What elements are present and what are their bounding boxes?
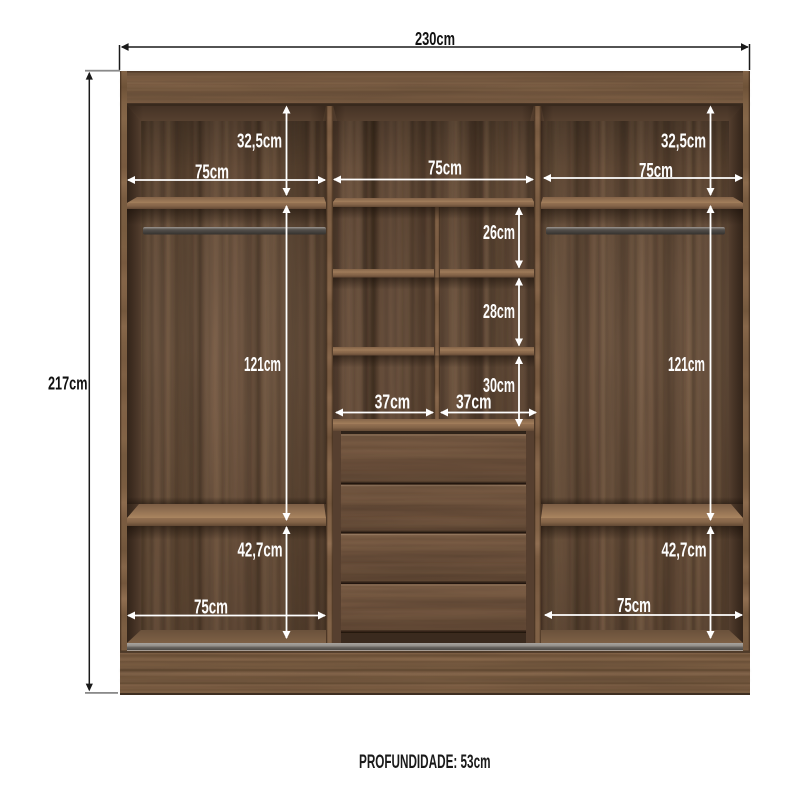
svg-text:75cm: 75cm — [428, 158, 462, 180]
svg-text:PROFUNDIDADE: 53cm: PROFUNDIDADE: 53cm — [359, 751, 491, 773]
svg-text:37cm: 37cm — [456, 392, 492, 414]
svg-text:121cm: 121cm — [668, 354, 705, 376]
svg-text:121cm: 121cm — [244, 354, 281, 376]
svg-text:75cm: 75cm — [195, 161, 229, 183]
svg-text:75cm: 75cm — [617, 595, 651, 617]
svg-text:42,7cm: 42,7cm — [662, 540, 707, 562]
svg-text:217cm: 217cm — [48, 374, 88, 394]
svg-text:42,7cm: 42,7cm — [238, 540, 283, 562]
svg-text:230cm: 230cm — [415, 29, 455, 49]
svg-text:28cm: 28cm — [483, 301, 515, 323]
svg-text:32,5cm: 32,5cm — [237, 131, 282, 153]
svg-text:75cm: 75cm — [194, 596, 228, 618]
svg-text:37cm: 37cm — [375, 392, 411, 414]
svg-text:75cm: 75cm — [639, 160, 673, 182]
svg-text:26cm: 26cm — [483, 222, 515, 244]
svg-text:32,5cm: 32,5cm — [661, 131, 706, 153]
